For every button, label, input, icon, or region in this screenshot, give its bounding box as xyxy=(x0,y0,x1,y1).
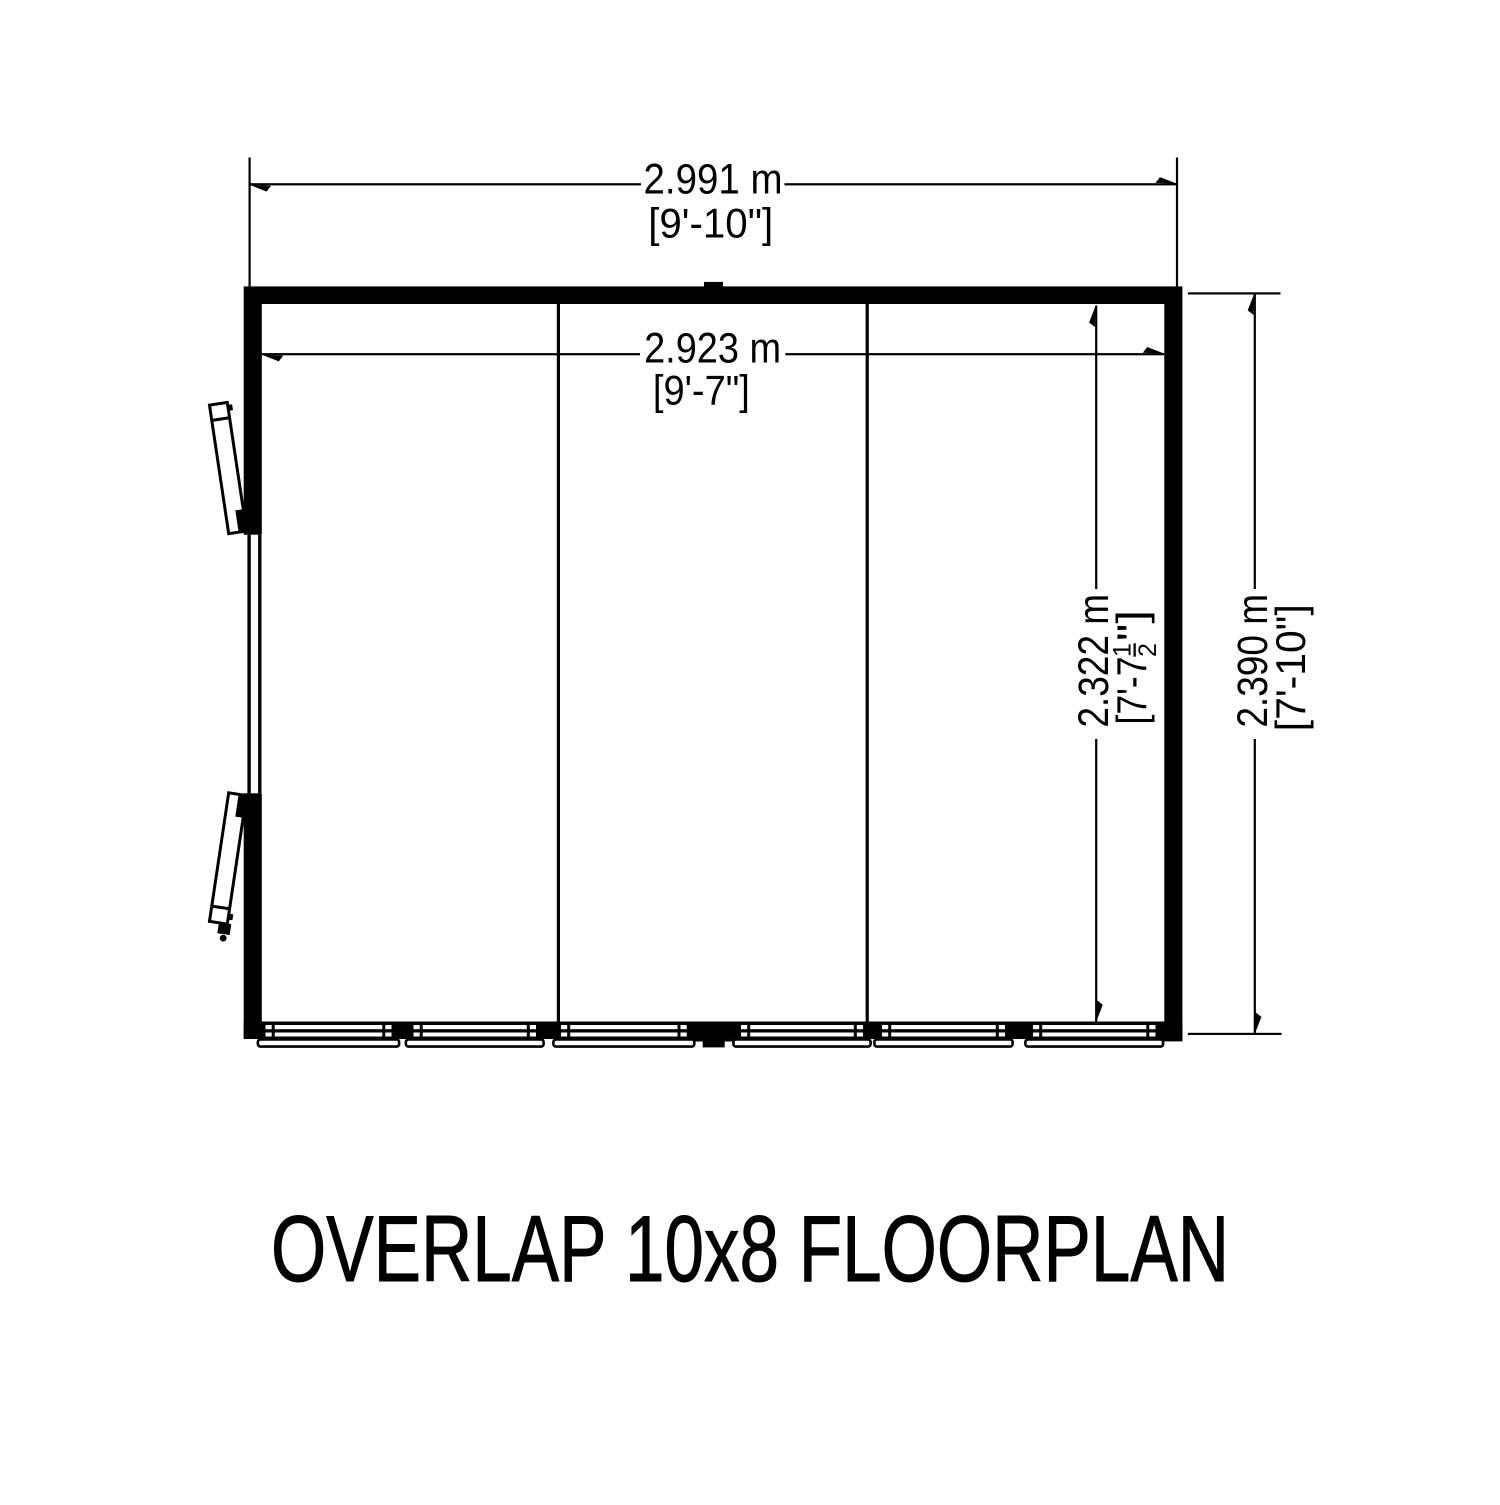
svg-text:[7'-10"]: [7'-10"] xyxy=(1267,604,1314,731)
svg-text:2.923 m: 2.923 m xyxy=(644,325,781,373)
svg-text:[9'-10"]: [9'-10"] xyxy=(648,200,773,247)
svg-text:2.991 m: 2.991 m xyxy=(644,156,783,204)
svg-text:[9'-7"]: [9'-7"] xyxy=(653,367,750,414)
svg-text:2: 2 xyxy=(1134,643,1162,657)
svg-text:"]: "] xyxy=(1108,610,1155,641)
svg-text:1: 1 xyxy=(1109,643,1137,657)
svg-text:OVERLAP 10x8 FLOORPLAN: OVERLAP 10x8 FLOORPLAN xyxy=(271,1196,1229,1301)
svg-text:[7'-7: [7'-7 xyxy=(1108,656,1155,724)
